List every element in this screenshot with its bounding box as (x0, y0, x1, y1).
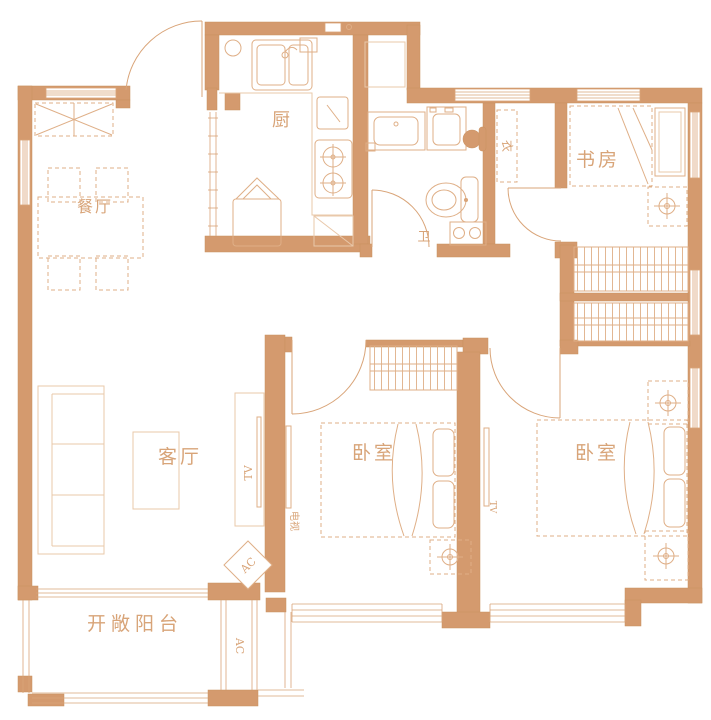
room-label-kitchen: 厨 (272, 110, 290, 131)
nightstand (648, 381, 688, 424)
tv-cabinet: TV (235, 393, 264, 526)
window-bedroom-right (690, 368, 700, 428)
tv-label-bedroom-middle: 电视 (288, 511, 301, 531)
room-label-dining: 餐厅 (77, 197, 113, 216)
window-dining-top (46, 88, 116, 98)
wardrobe-study (574, 247, 688, 291)
tv-panel (484, 428, 489, 506)
window-study-right (690, 112, 700, 178)
room-kitchen: 厨 (219, 23, 405, 246)
wardrobe-bedroom-middle (370, 346, 457, 390)
wardrobe-bedroom-right (574, 303, 688, 341)
walls (18, 22, 702, 706)
study-nightstand (648, 187, 687, 226)
pillows (664, 427, 685, 527)
bay-window-bedroom-right (490, 604, 625, 622)
washing-machine (427, 107, 466, 150)
study-desk (655, 108, 685, 176)
blanket-fold (624, 422, 654, 534)
floor-drain (450, 222, 486, 245)
floor-plan: 餐厅 (0, 0, 711, 720)
sideboard-cabinet (35, 103, 113, 136)
balcony-threshold (36, 589, 208, 597)
pillows (433, 429, 454, 528)
dining-chair (48, 256, 80, 290)
room-living: TV 客厅 AC (38, 386, 272, 589)
study-door-arc (508, 188, 561, 241)
window-wardrobe-right (690, 270, 700, 335)
room-label-bedroom-right: 卧室 (575, 442, 619, 464)
tv-label-bedroom-right: TV (487, 501, 497, 514)
window-dining-left (20, 140, 30, 205)
lamp-icon (655, 390, 681, 416)
room-label-balcony: 开敞阳台 (87, 613, 183, 635)
room-study: 书房 (570, 106, 687, 226)
gas-stove (315, 140, 352, 198)
toilet (426, 177, 478, 222)
dining-chair (96, 256, 128, 290)
lamp-icon (653, 543, 679, 569)
kitchen-sink (252, 40, 312, 90)
room-bedroom-right: TV 卧室 (484, 381, 688, 580)
room-dining: 餐厅 (35, 103, 143, 290)
nightstand (645, 531, 688, 580)
study-bed (570, 106, 652, 186)
study-blanket-fold (618, 108, 652, 184)
ac-shaft: AC (221, 600, 257, 690)
cutting-board (317, 97, 348, 129)
coffee-table (133, 432, 179, 509)
drain-strip (258, 612, 304, 696)
tv-label-living: TV (242, 464, 255, 480)
window-study-top (577, 89, 640, 101)
kitchen-opening (208, 112, 218, 236)
lamp-icon (654, 193, 680, 219)
hall-closet: 衣 (497, 110, 517, 182)
room-bedroom-middle: 电视 卧室 (286, 423, 471, 574)
tv-panel (286, 426, 291, 508)
duct-niche (365, 42, 405, 87)
bay-window-bedroom-middle (292, 604, 442, 622)
sofa (38, 386, 104, 554)
vanity-sink (366, 112, 425, 151)
room-label-living: 客厅 (158, 446, 202, 468)
closet-label: 衣 (500, 140, 515, 152)
blanket-fold (392, 424, 422, 536)
bed (321, 423, 455, 537)
entry-door-arc (126, 21, 202, 97)
kitchen-basin (225, 40, 241, 56)
bedroom-middle-door-arc (292, 340, 366, 414)
ac-shaft-label: AC (233, 637, 246, 654)
room-balcony: AC 开敞阳台 (23, 600, 304, 703)
room-label-bathroom: 卫 (417, 230, 430, 245)
room-label-bedroom-middle: 卧室 (352, 442, 396, 464)
room-label-study: 书房 (576, 149, 620, 171)
window-bathroom-top (455, 89, 530, 101)
bedroom-right-door-arc (490, 348, 560, 418)
tv-panel (257, 417, 261, 507)
